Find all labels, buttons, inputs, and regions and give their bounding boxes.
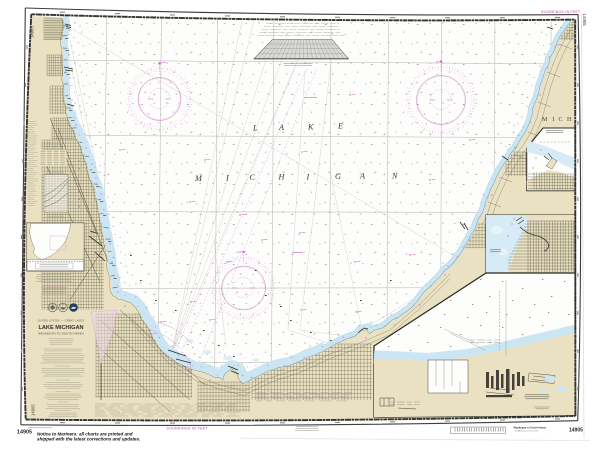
- svg-text:14905: 14905: [582, 14, 587, 27]
- svg-text:A: A: [78, 189, 80, 193]
- svg-text:shipped with the latest correc: shipped with the latest corrections and …: [37, 436, 140, 441]
- svg-text:14905: 14905: [31, 404, 36, 416]
- svg-text:L: L: [252, 124, 258, 133]
- svg-text:C: C: [559, 117, 563, 123]
- svg-text:N: N: [391, 171, 398, 180]
- svg-text:O: O: [78, 205, 80, 209]
- svg-text:WAUKEGAN TO SOUTH HAVEN: WAUKEGAN TO SOUTH HAVEN: [38, 331, 84, 335]
- svg-text:14905: 14905: [569, 427, 583, 433]
- svg-text:C: C: [78, 182, 80, 186]
- svg-text:H: H: [78, 167, 80, 171]
- svg-text:A: A: [359, 172, 366, 181]
- svg-text:G: G: [335, 172, 341, 181]
- svg-text:UNITED STATES — GREAT LAKES: UNITED STATES — GREAT LAKES: [38, 320, 85, 323]
- svg-text:G: G: [78, 197, 80, 201]
- svg-text:I: I: [553, 117, 555, 123]
- svg-text:C: C: [250, 173, 256, 182]
- svg-text:K: K: [307, 122, 314, 131]
- svg-text:Waukegan to South Haven: Waukegan to South Haven: [514, 426, 547, 430]
- svg-text:14905: 14905: [17, 429, 32, 435]
- svg-text:M: M: [194, 174, 203, 183]
- svg-text:C: C: [78, 159, 80, 163]
- svg-text:A: A: [278, 123, 285, 132]
- svg-text:SOUNDINGS IN FEET: SOUNDINGS IN FEET: [167, 426, 208, 430]
- svg-text:NOAA Nautical Chart 14905: NOAA Nautical Chart 14905: [515, 430, 539, 433]
- svg-text:H: H: [567, 117, 572, 123]
- svg-text:SOUNDINGS IN FEET: SOUNDINGS IN FEET: [541, 10, 580, 14]
- svg-text:M: M: [542, 117, 548, 123]
- svg-text:14905: 14905: [30, 26, 35, 38]
- svg-text:LAKE MICHIGAN: LAKE MICHIGAN: [38, 325, 83, 331]
- svg-text:H: H: [278, 173, 286, 182]
- svg-text:E: E: [337, 122, 343, 131]
